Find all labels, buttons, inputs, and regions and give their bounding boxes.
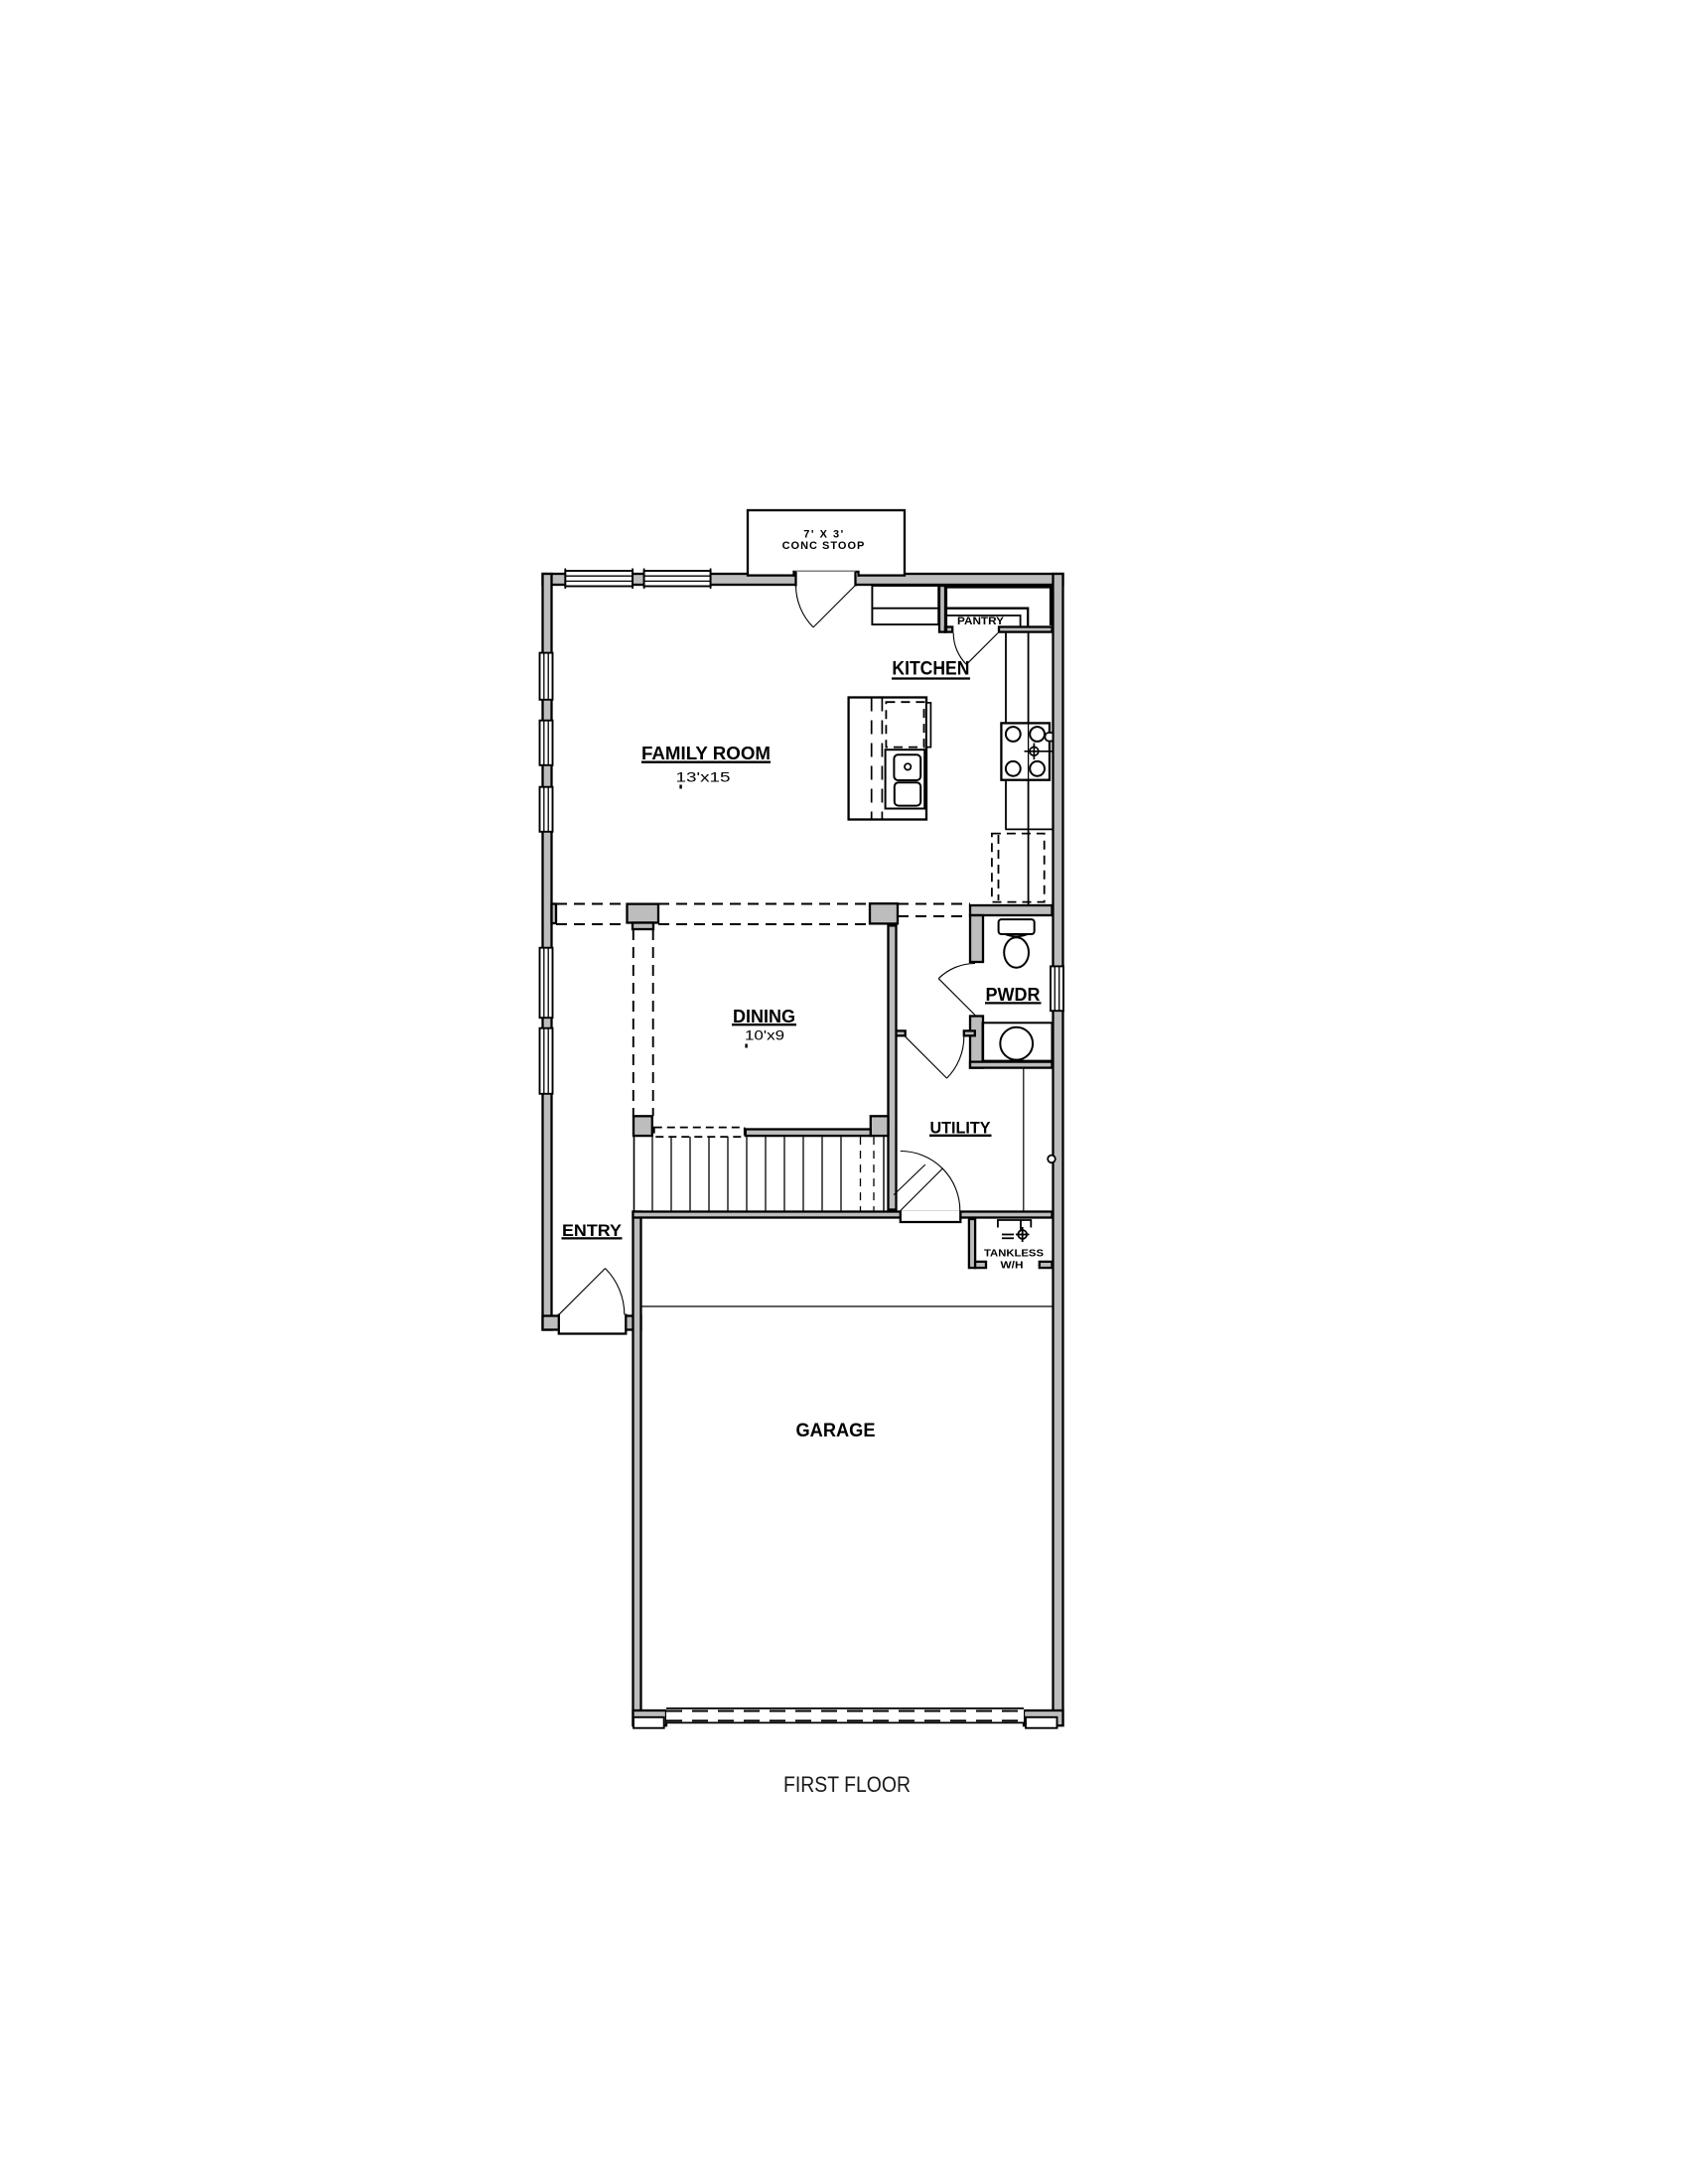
svg-text:CONC STOOP: CONC STOOP bbox=[782, 540, 866, 552]
svg-text:W/H: W/H bbox=[1001, 1260, 1024, 1272]
svg-text:UTILITY: UTILITY bbox=[930, 1118, 992, 1137]
svg-text:KITCHEN: KITCHEN bbox=[892, 659, 969, 680]
svg-text:FAMILY ROOM: FAMILY ROOM bbox=[641, 744, 771, 763]
svg-text:GARAGE: GARAGE bbox=[796, 1421, 876, 1441]
svg-text:10'x9: 10'x9 bbox=[745, 1027, 784, 1043]
svg-text:TANKLESS: TANKLESS bbox=[984, 1247, 1044, 1259]
svg-text:13'x15: 13'x15 bbox=[676, 768, 731, 784]
svg-text:ENTRY: ENTRY bbox=[562, 1221, 623, 1240]
svg-text:FIRST FLOOR: FIRST FLOOR bbox=[783, 1772, 911, 1797]
svg-text:PANTRY: PANTRY bbox=[957, 615, 1005, 627]
svg-text:DINING: DINING bbox=[733, 1007, 795, 1026]
svg-text:7' X 3': 7' X 3' bbox=[803, 529, 844, 541]
svg-text:PWDR: PWDR bbox=[986, 985, 1041, 1005]
